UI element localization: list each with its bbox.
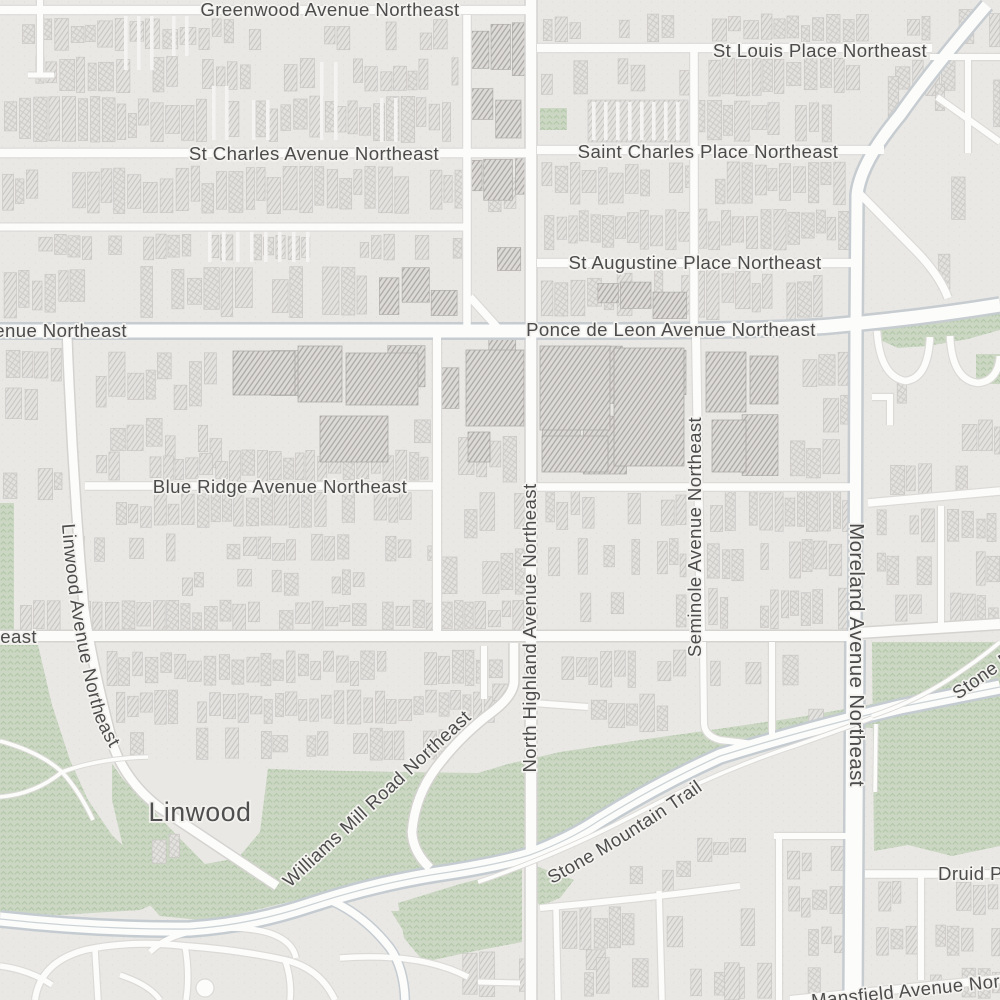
svg-text:Linwood: Linwood [149,797,252,827]
svg-text:Ponce de Leon Avenue Northeast: Ponce de Leon Avenue Northeast [526,319,816,340]
svg-text:Ponce de Leon Avenue Northeast: Ponce de Leon Avenue Northeast [0,320,127,341]
svg-text:St Augustine Place Northeast: St Augustine Place Northeast [568,252,821,273]
svg-text:Seminole Avenue Northeast: Seminole Avenue Northeast [684,416,705,657]
svg-text:Moreland Avenue Northeast: Moreland Avenue Northeast [845,523,868,787]
svg-text:Druid Place: Druid Place [938,863,1000,884]
svg-text:St Louis Place Northeast: St Louis Place Northeast [713,40,928,61]
svg-text:Blue Ridge Avenue Northeast: Blue Ridge Avenue Northeast [153,476,408,497]
svg-text:Greenwood Avenue Northeast: Greenwood Avenue Northeast [200,0,460,20]
svg-text:North Avenue Northeast: North Avenue Northeast [0,626,37,647]
svg-text:Saint Charles Place Northeast: Saint Charles Place Northeast [578,141,839,162]
svg-text:St Charles Avenue Northeast: St Charles Avenue Northeast [189,143,440,164]
svg-text:North Highland Avenue Northeas: North Highland Avenue Northeast [519,483,540,773]
